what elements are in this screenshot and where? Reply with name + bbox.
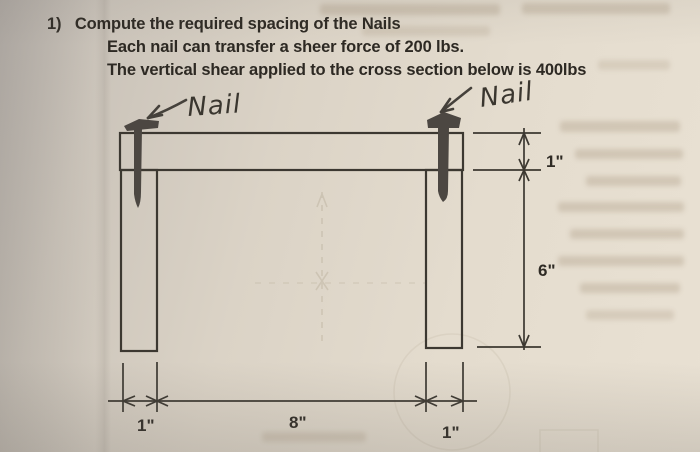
dim-label-web-spacing: 8" xyxy=(289,413,307,432)
dim-label-left-web-width: 1" xyxy=(137,416,155,435)
right-nail-shaft xyxy=(438,127,449,202)
cross-section-figure: 1" 6" 1" 8" 1" Nail Nail xyxy=(0,0,700,452)
left-nail-shaft xyxy=(134,128,142,208)
nail-label-right: Nail xyxy=(478,77,535,114)
dim-label-web-depth: 6" xyxy=(538,261,556,280)
dim-label-flange-thickness: 1" xyxy=(546,152,564,171)
top-flange xyxy=(120,133,463,170)
right-nail-head xyxy=(427,112,461,128)
photographed-worksheet: 1) Compute the required spacing of the N… xyxy=(0,0,700,452)
left-nail-arrow xyxy=(148,100,186,118)
nails xyxy=(124,112,461,208)
right-nail-arrow xyxy=(441,88,471,112)
dim-label-right-web-width: 1" xyxy=(442,423,460,442)
nail-label-left: Nail xyxy=(186,89,242,123)
